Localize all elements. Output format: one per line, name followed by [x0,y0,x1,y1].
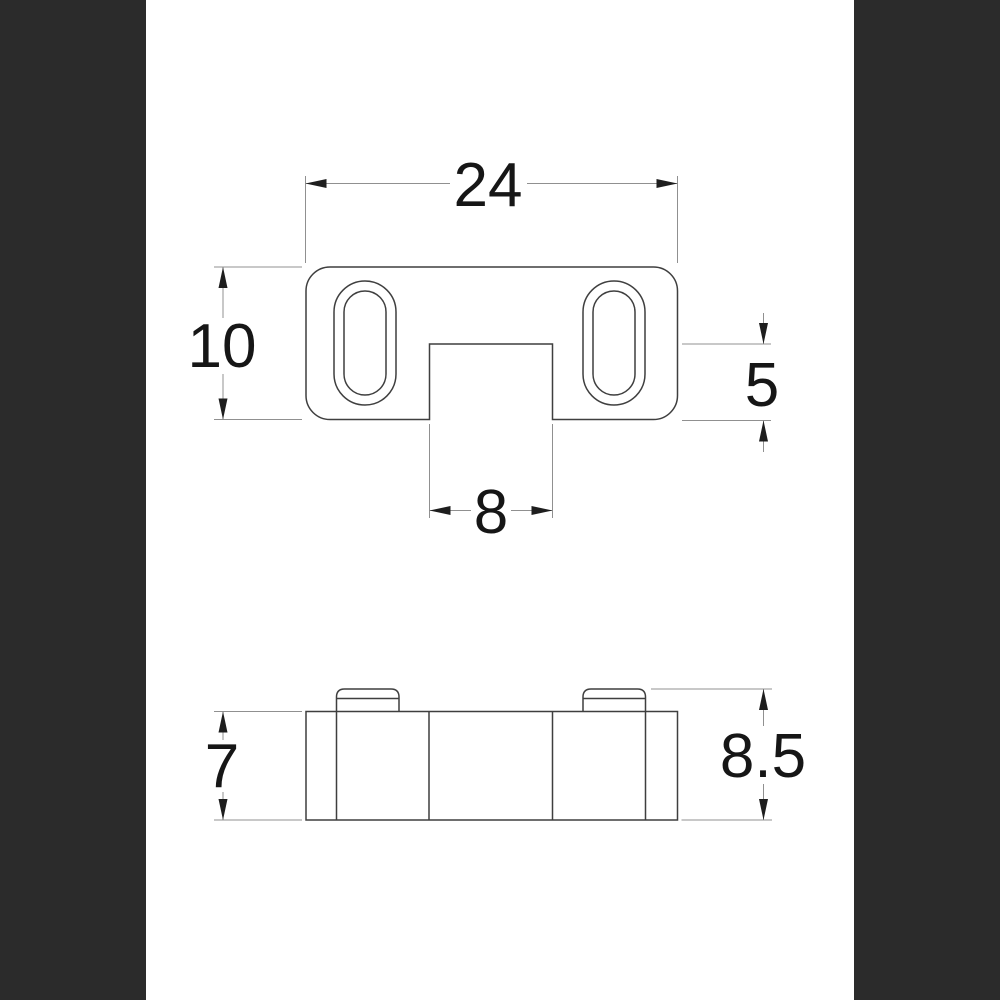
technical-drawing-svg: 24 10 8 5 7 8.5 [0,0,1000,1000]
drawing-page: 24 10 8 5 7 8.5 [0,0,1000,1000]
left-letterbox-bar [0,0,146,1000]
dim-label-notch-depth: 5 [745,351,779,420]
dim-label-overall-height: 8.5 [720,722,806,791]
right-letterbox-bar [854,0,1000,1000]
dim-label-body-height: 7 [205,732,239,801]
dim-label-width: 24 [454,151,523,220]
dim-label-height: 10 [188,312,257,381]
dim-label-notch-width: 8 [474,478,508,547]
